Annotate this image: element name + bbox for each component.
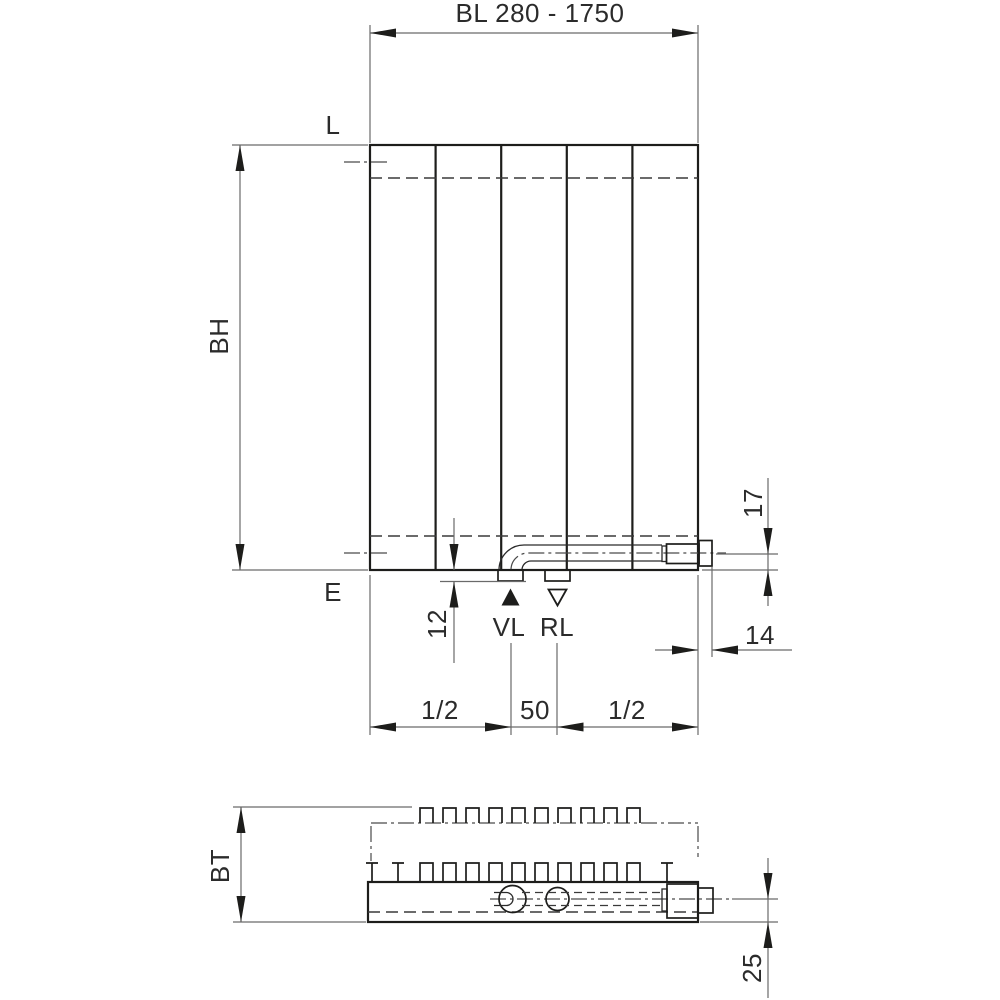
return-label-text: RL — [540, 612, 574, 642]
technical-drawing-canvas: BL 280 - 1750 L E BH 12 VL RL 1/2 50 1/2 — [0, 0, 1000, 1000]
radiator-dimension-drawing: BL 280 - 1750 L E BH 12 VL RL 1/2 50 1/2 — [0, 0, 1000, 1000]
dimension-chain-bottom: 1/2 50 1/2 — [370, 575, 698, 735]
header-centerline-markers — [344, 162, 390, 553]
panel-divider-lines — [436, 145, 633, 570]
arrow-up-icon — [450, 582, 459, 608]
edge-labels: L E — [324, 110, 342, 607]
flow-label-text: VL — [493, 612, 526, 642]
arrow-left-icon — [712, 646, 738, 655]
flow-stub — [498, 570, 523, 581]
arrow-up-icon — [237, 807, 246, 833]
dimension-bh: BH — [204, 145, 368, 570]
dim-25-text: 25 — [737, 953, 767, 983]
pipe-elbow-arcs — [499, 545, 531, 570]
arrow-down-icon — [237, 896, 246, 922]
side-fitting-bottom — [662, 884, 713, 918]
arrow-up-icon — [764, 922, 773, 948]
front-view — [344, 145, 726, 581]
half-left-dim-text: 1/2 — [421, 695, 459, 725]
fitting-body — [667, 544, 700, 564]
dimension-bl: BL 280 - 1750 — [370, 0, 698, 143]
flow-return-symbols: VL RL — [493, 589, 575, 643]
arrow-right-icon — [672, 723, 698, 732]
fitting-body — [667, 884, 698, 918]
bl-dim-lines — [370, 25, 698, 143]
arrow-right-icon — [485, 723, 511, 732]
bottom-view-body — [368, 882, 698, 922]
dimension-25: 25 — [700, 858, 778, 998]
dimension-bt: BT — [205, 807, 412, 922]
dim-12-text: 12 — [422, 609, 452, 639]
bh-dim-lines — [232, 145, 368, 570]
spacing-50-dim-text: 50 — [520, 695, 550, 725]
dimension-17: 17 — [702, 478, 778, 606]
label-e: E — [324, 577, 342, 607]
label-l: L — [326, 110, 341, 140]
dim-17-text: 17 — [738, 488, 768, 518]
bottom-connection-stubs — [498, 570, 570, 581]
arrow-left-icon — [558, 723, 584, 732]
dimension-14: 14 — [655, 567, 792, 657]
convector-fins-lower-row — [420, 863, 640, 882]
arrow-right-icon — [672, 29, 698, 38]
arrow-left-icon — [370, 29, 396, 38]
convector-fins-upper-row — [420, 808, 640, 823]
arrow-down-icon — [236, 544, 245, 570]
connection-pipe — [499, 545, 726, 570]
arrow-up-icon — [236, 145, 245, 171]
convector-phantom-outline — [371, 823, 698, 861]
hidden-header-edges — [370, 178, 698, 536]
arrow-up-icon — [764, 570, 773, 596]
bl-dim-text: BL 280 - 1750 — [456, 0, 625, 28]
return-stub — [545, 570, 570, 581]
arrow-down-icon — [450, 544, 459, 570]
radiator-body-outline — [370, 145, 698, 570]
half-right-dim-text: 1/2 — [608, 695, 646, 725]
arrow-down-icon — [764, 528, 773, 554]
bt-dim-text: BT — [205, 849, 235, 883]
arrow-left-icon — [370, 723, 396, 732]
return-direction-icon — [549, 590, 567, 606]
bottom-view — [366, 808, 730, 922]
dim-14-text: 14 — [745, 620, 775, 650]
bt-dim-lines — [233, 807, 412, 922]
arrow-down-icon — [764, 873, 773, 899]
flow-direction-icon — [502, 589, 520, 606]
fitting-nut — [698, 888, 713, 913]
bh-dim-text: BH — [204, 317, 234, 354]
arrow-right-icon — [672, 646, 698, 655]
